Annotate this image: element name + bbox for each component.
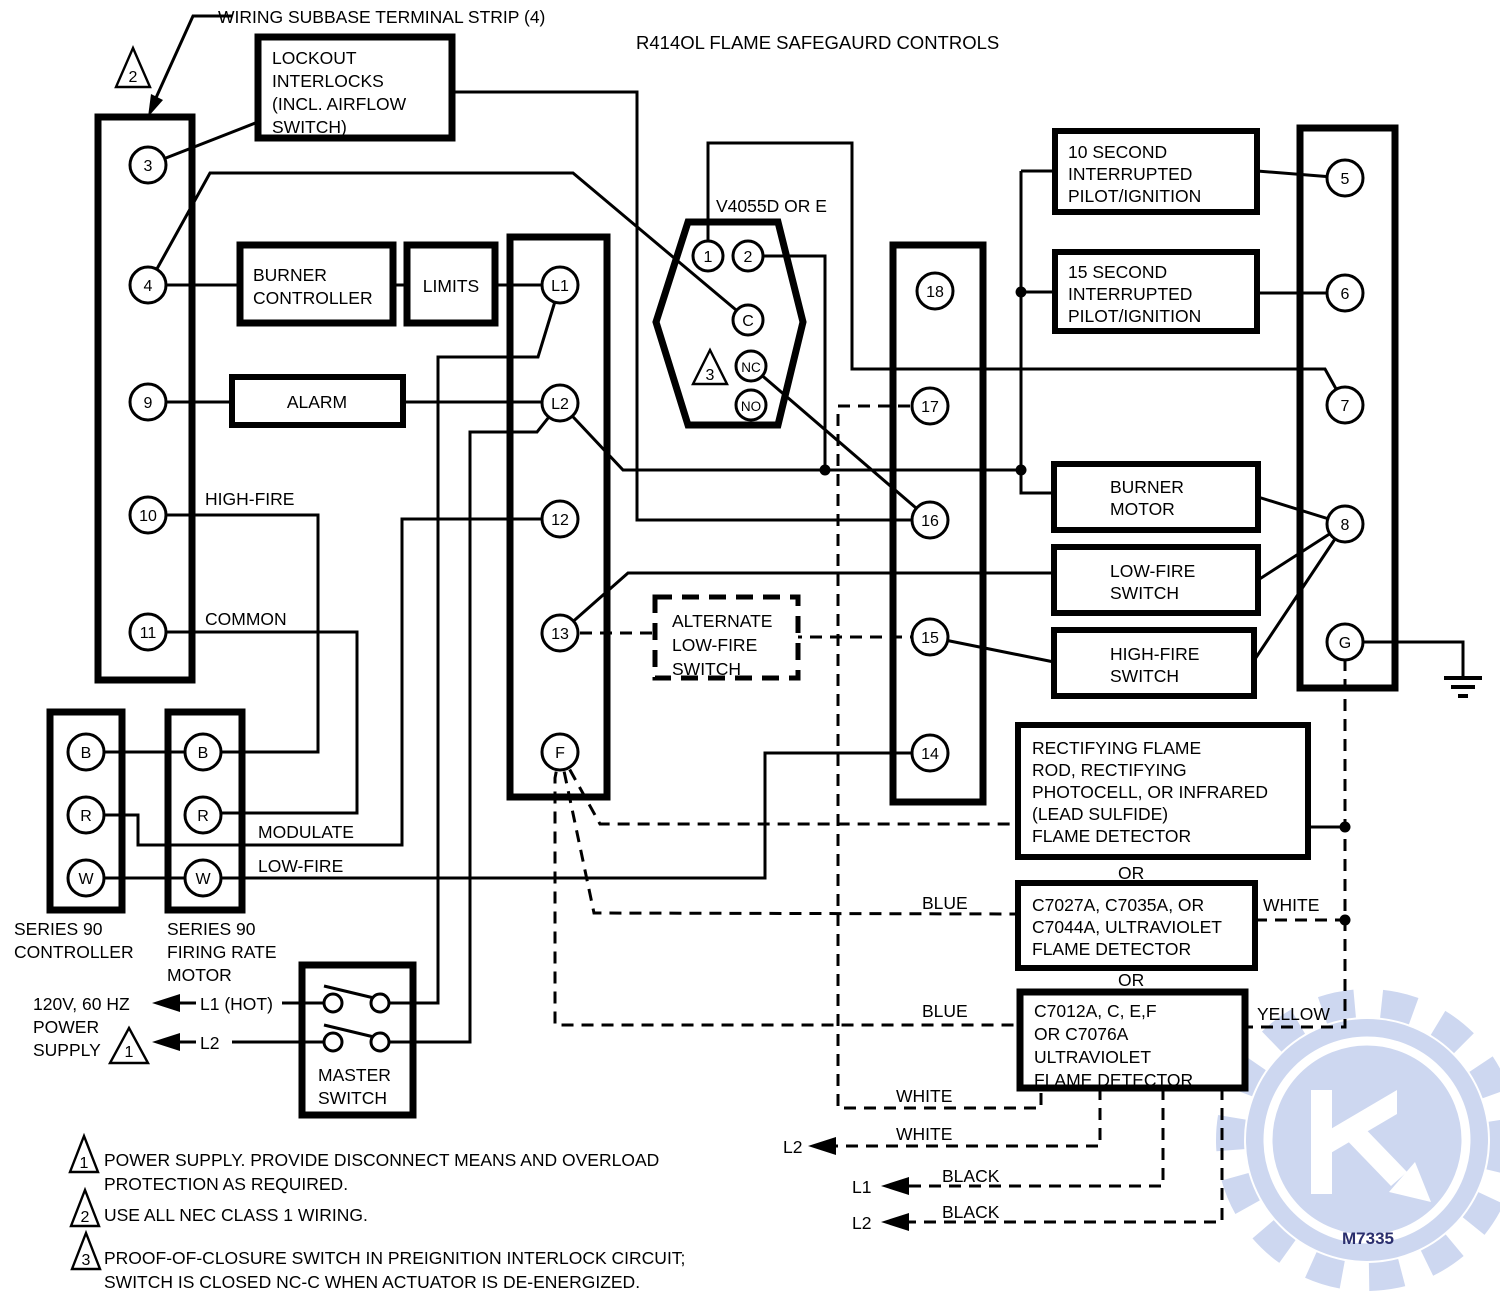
terminal-9-label: 9 xyxy=(144,395,153,412)
note-3-line-1: PROOF-OF-CLOSURE SWITCH IN PREIGNITION I… xyxy=(104,1248,685,1268)
white-wire-label-l2: WHITE xyxy=(896,1124,952,1144)
pilot10-line-3: PILOT/IGNITION xyxy=(1068,186,1201,206)
junction-dot xyxy=(1340,822,1351,833)
arrow-l2-black-label: L2 xyxy=(852,1213,871,1233)
l1-hot-label: L1 (HOT) xyxy=(200,994,273,1014)
junction-dot xyxy=(1016,287,1027,298)
yellow-wire-label: YELLOW xyxy=(1257,1004,1330,1024)
master-switch-contact xyxy=(324,1033,342,1051)
valve-terminal-1-label: 1 xyxy=(704,249,713,266)
pilot15-line-2: INTERRUPTED xyxy=(1068,284,1192,304)
valve-terminal-c-label: C xyxy=(742,313,754,330)
or-separator-1: OR xyxy=(1118,863,1144,883)
note-3-line-2: SWITCH IS CLOSED NC-C WHEN ACTUATOR IS D… xyxy=(104,1272,640,1292)
callout-1-number: 1 xyxy=(125,1044,134,1061)
white-wire-label-17: WHITE xyxy=(896,1086,952,1106)
terminal-8-label: 8 xyxy=(1341,517,1350,534)
terminal-16-label: 16 xyxy=(921,513,939,530)
alt-low-fire-line-3: SWITCH xyxy=(672,659,741,679)
alarm-label: ALARM xyxy=(287,392,347,412)
master-switch-contact xyxy=(324,994,342,1012)
alt-low-fire-line-2: LOW-FIRE xyxy=(672,635,757,655)
pilot15-line-3: PILOT/IGNITION xyxy=(1068,306,1201,326)
l1-black-arrow-icon xyxy=(881,1177,909,1195)
burner-controller-line-1: BURNER xyxy=(253,265,327,285)
notes-section: 1 POWER SUPPLY. PROVIDE DISCONNECT MEANS… xyxy=(80,1150,686,1292)
terminal-12-label: 12 xyxy=(551,512,569,529)
arrow-l2-white-label: L2 xyxy=(783,1137,802,1157)
limits-label: LIMITS xyxy=(423,276,479,296)
rectifying-line-3: PHOTOCELL, OR INFRARED xyxy=(1032,782,1268,802)
motor-terminal-r-label: R xyxy=(197,808,209,825)
arrow-l1-black-label: L1 xyxy=(852,1177,871,1197)
note-1-number: 1 xyxy=(80,1155,89,1172)
valve-terminal-nc-label: NC xyxy=(741,360,761,375)
master-switch-contact xyxy=(371,1033,389,1051)
wiring-diagram-page: 3 4 9 10 11 L1 L2 12 13 F 18 17 16 15 14 xyxy=(0,0,1500,1300)
black-wire-label-l2: BLACK xyxy=(942,1202,1000,1222)
or-separator-2: OR xyxy=(1118,970,1144,990)
wiring-diagram: 3 4 9 10 11 L1 L2 12 13 F 18 17 16 15 14 xyxy=(0,0,1500,1300)
burner-motor-box xyxy=(1054,464,1258,530)
subbase-pointer-line xyxy=(155,16,232,100)
doc-number: M7335 xyxy=(1342,1229,1394,1248)
terminal-3-label: 3 xyxy=(144,158,153,175)
burner-controller-line-2: CONTROLLER xyxy=(253,288,373,308)
subbase-strip-label: WIRING SUBBASE TERMINAL STRIP (4) xyxy=(218,7,545,27)
series90-motor-line-1: SERIES 90 xyxy=(167,919,256,939)
white-wire-label-right: WHITE xyxy=(1263,895,1319,915)
lockout-line-4: SWITCH) xyxy=(272,117,347,137)
callout-3-number: 3 xyxy=(706,367,715,384)
blue-wire-label-lower: BLUE xyxy=(922,1001,968,1021)
note-2-line-1: USE ALL NEC CLASS 1 WIRING. xyxy=(104,1205,368,1225)
power-supply-line-1: 120V, 60 HZ xyxy=(33,994,130,1014)
rectifying-line-4: (LEAD SULFIDE) xyxy=(1032,804,1168,824)
terminal-14-label: 14 xyxy=(921,746,939,763)
high-fire-wire-label: HIGH-FIRE xyxy=(205,489,294,509)
burner-motor-line-1: BURNER xyxy=(1110,477,1184,497)
terminal-13-label: 13 xyxy=(551,626,569,643)
lockout-line-2: INTERLOCKS xyxy=(272,71,384,91)
master-switch-line-2: SWITCH xyxy=(318,1088,387,1108)
note-1-line-2: PROTECTION AS REQUIRED. xyxy=(104,1174,348,1194)
pilot10-line-2: INTERRUPTED xyxy=(1068,164,1192,184)
lockout-line-3: (INCL. AIRFLOW xyxy=(272,94,407,114)
modulate-wire-label: MODULATE xyxy=(258,822,354,842)
rectifying-line-1: RECTIFYING FLAME xyxy=(1032,738,1201,758)
l2-arrow-icon xyxy=(152,1033,180,1051)
c7027-line-2: C7044A, ULTRAVIOLET xyxy=(1032,917,1222,937)
terminal-7-label: 7 xyxy=(1341,398,1350,415)
power-supply-caption: 120V, 60 HZ POWER SUPPLY xyxy=(33,994,130,1060)
master-switch-line-1: MASTER xyxy=(318,1065,391,1085)
terminal-10-label: 10 xyxy=(139,508,157,525)
series90-controller-line-2: CONTROLLER xyxy=(14,942,134,962)
power-supply-line-3: SUPPLY xyxy=(33,1040,101,1060)
l2-white-arrow-icon xyxy=(808,1137,836,1155)
terminal-f-label: F xyxy=(555,745,565,762)
pilot10-line-1: 10 SECOND xyxy=(1068,142,1167,162)
rectifying-line-2: ROD, RECTIFYING xyxy=(1032,760,1187,780)
junction-dot xyxy=(820,465,831,476)
pilot15-line-1: 15 SECOND xyxy=(1068,262,1167,282)
motor-terminal-b-label: B xyxy=(198,745,209,762)
note-1-line-1: POWER SUPPLY. PROVIDE DISCONNECT MEANS A… xyxy=(104,1150,659,1170)
valve-terminal-2-label: 2 xyxy=(744,249,753,266)
series90-motor-line-2: FIRING RATE xyxy=(167,942,277,962)
valve-terminal-no-label: NO xyxy=(741,399,761,414)
terminal-6-label: 6 xyxy=(1341,286,1350,303)
l2-black-arrow-icon xyxy=(881,1213,909,1231)
high-fire-switch-line-2: SWITCH xyxy=(1110,666,1179,686)
terminal-g-label: G xyxy=(1339,635,1351,652)
series90-controller-caption: SERIES 90 CONTROLLER xyxy=(14,919,134,962)
series90-controller-line-1: SERIES 90 xyxy=(14,919,103,939)
terminal-l2-label: L2 xyxy=(551,396,569,413)
note-3-number: 3 xyxy=(82,1252,91,1269)
low-fire-wire-label: LOW-FIRE xyxy=(258,856,343,876)
terminal-18-label: 18 xyxy=(926,284,944,301)
c7027-line-3: FLAME DETECTOR xyxy=(1032,939,1191,959)
common-wire-label: COMMON xyxy=(205,609,287,629)
high-fire-switch-line-1: HIGH-FIRE xyxy=(1110,644,1199,664)
wire-bus-to-burner-motor xyxy=(1021,171,1054,493)
c7012-line-4: FLAME DETECTOR xyxy=(1034,1070,1193,1090)
low-fire-switch-line-2: SWITCH xyxy=(1110,583,1179,603)
lockout-line-1: LOCKOUT xyxy=(272,48,357,68)
callout-2-number: 2 xyxy=(129,69,138,86)
controller-terminal-b-label: B xyxy=(81,745,92,762)
l1-hot-arrow-icon xyxy=(152,994,180,1012)
controller-terminal-w-label: W xyxy=(78,871,94,888)
junction-dot xyxy=(1340,915,1351,926)
note-2-number: 2 xyxy=(81,1209,90,1226)
v4055-valve-outline xyxy=(656,222,803,425)
junction-dot xyxy=(1016,465,1027,476)
series90-motor-line-3: MOTOR xyxy=(167,965,232,985)
c7027-line-1: C7027A, C7035A, OR xyxy=(1032,895,1204,915)
power-supply-line-2: POWER xyxy=(33,1017,99,1037)
series90-terminal-group: B R W B R W xyxy=(68,734,221,896)
wire-c7012-white-to-l2 xyxy=(836,1088,1100,1146)
terminal-l1-label: L1 xyxy=(551,278,569,295)
c7012-line-1: C7012A, C, E,F xyxy=(1034,1001,1157,1021)
alt-low-fire-line-1: ALTERNATE xyxy=(672,611,772,631)
black-wire-label-l1: BLACK xyxy=(942,1166,1000,1186)
blue-wire-label-upper: BLUE xyxy=(922,893,968,913)
rectifying-line-5: FLAME DETECTOR xyxy=(1032,826,1191,846)
c7012-line-3: ULTRAVIOLET xyxy=(1034,1047,1151,1067)
terminal-5-label: 5 xyxy=(1341,171,1350,188)
c7012-line-2: OR C7076A xyxy=(1034,1024,1129,1044)
motor-terminal-w-label: W xyxy=(195,871,211,888)
valve-label: V4055D OR E xyxy=(716,196,827,216)
page-title: R414OL FLAME SAFEGAURD CONTROLS xyxy=(636,32,999,53)
terminal-15-label: 15 xyxy=(921,630,939,647)
l2-power-label: L2 xyxy=(200,1033,219,1053)
burner-motor-line-2: MOTOR xyxy=(1110,499,1175,519)
master-switch-contact xyxy=(371,994,389,1012)
low-fire-switch-line-1: LOW-FIRE xyxy=(1110,561,1195,581)
terminal-4-label: 4 xyxy=(144,278,153,295)
series90-motor-caption: SERIES 90 FIRING RATE MOTOR xyxy=(167,919,277,985)
terminal-17-label: 17 xyxy=(921,399,939,416)
ground-symbol-icon xyxy=(1444,678,1482,696)
controller-terminal-r-label: R xyxy=(80,808,92,825)
terminal-11-label: 11 xyxy=(140,625,157,642)
